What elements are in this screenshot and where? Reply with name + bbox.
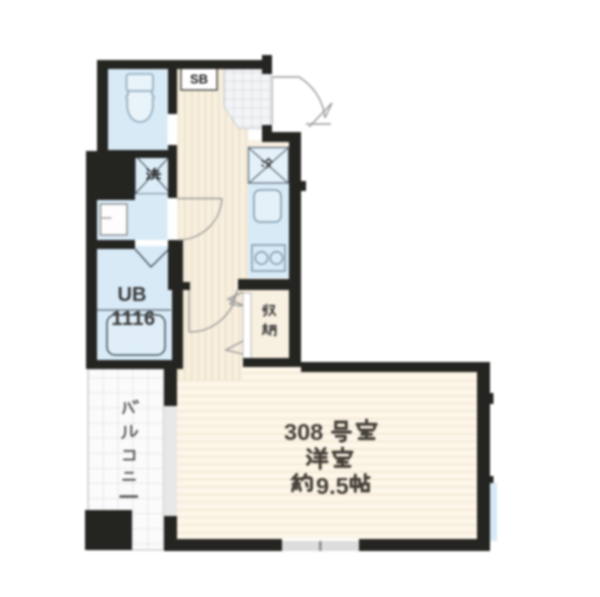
svg-text:1116: 1116 bbox=[111, 308, 155, 330]
svg-text:308: 308 bbox=[284, 419, 323, 445]
svg-text:UB: UB bbox=[118, 284, 147, 306]
svg-text:9.5: 9.5 bbox=[316, 473, 349, 499]
svg-text:SB: SB bbox=[190, 72, 208, 87]
